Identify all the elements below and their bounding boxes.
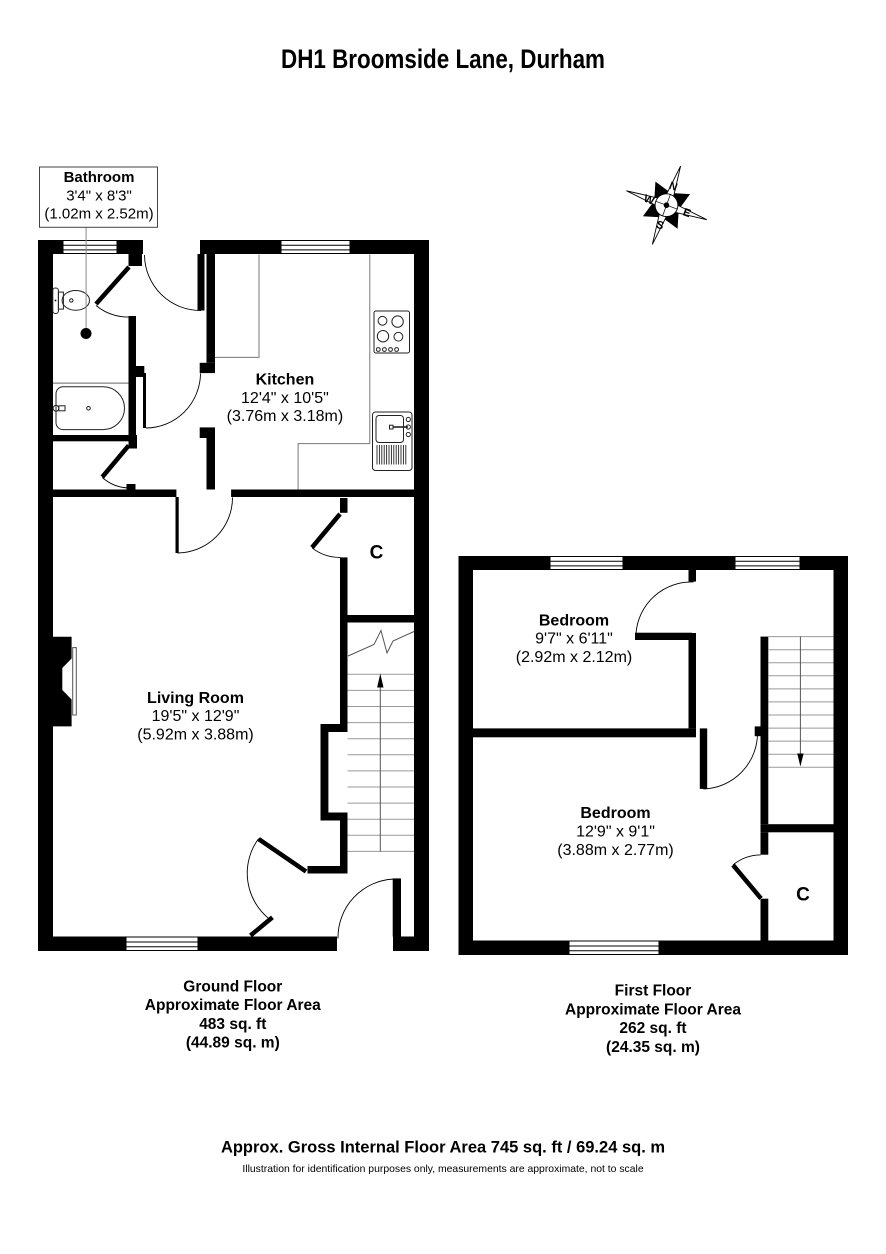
svg-text:Ground Floor: Ground Floor xyxy=(183,978,282,995)
svg-text:Kitchen: Kitchen xyxy=(256,372,315,389)
svg-text:(44.89 sq. m): (44.89 sq. m) xyxy=(186,1035,280,1052)
svg-text:262 sq. ft: 262 sq. ft xyxy=(619,1020,686,1037)
svg-text:19'5" x 12'9": 19'5" x 12'9" xyxy=(152,708,240,725)
svg-text:(1.02m x 2.52m): (1.02m x 2.52m) xyxy=(44,206,153,223)
svg-text:Bedroom: Bedroom xyxy=(580,805,650,822)
svg-text:(2.92m x 2.12m): (2.92m x 2.12m) xyxy=(516,649,632,666)
svg-text:3'4" x 8'3": 3'4" x 8'3" xyxy=(66,187,132,204)
svg-text:12'9" x 9'1": 12'9" x 9'1" xyxy=(576,824,655,841)
svg-text:Bedroom: Bedroom xyxy=(539,613,609,630)
svg-text:(5.92m x 3.88m): (5.92m x 3.88m) xyxy=(137,726,253,743)
svg-text:(3.76m x 3.18m): (3.76m x 3.18m) xyxy=(227,408,343,425)
svg-text:C: C xyxy=(370,543,384,564)
svg-text:Approx. Gross Internal Floor A: Approx. Gross Internal Floor Area 745 sq… xyxy=(221,1138,665,1156)
svg-text:Approximate Floor Area: Approximate Floor Area xyxy=(145,997,321,1014)
svg-text:Illustration for identificatio: Illustration for identification purposes… xyxy=(242,1164,643,1175)
svg-text:12'4" x 10'5": 12'4" x 10'5" xyxy=(241,390,329,407)
svg-text:Bathroom: Bathroom xyxy=(64,169,135,186)
svg-text:9'7" x 6'11": 9'7" x 6'11" xyxy=(535,631,613,648)
svg-text:483 sq. ft: 483 sq. ft xyxy=(199,1016,266,1033)
svg-text:(3.88m x 2.77m): (3.88m x 2.77m) xyxy=(557,842,673,859)
svg-text:DH1 Broomside Lane, Durham: DH1 Broomside Lane, Durham xyxy=(281,44,605,74)
svg-text:Living Room: Living Room xyxy=(147,690,244,707)
svg-text:(24.35 sq. m): (24.35 sq. m) xyxy=(606,1039,700,1056)
svg-text:Approximate Floor Area: Approximate Floor Area xyxy=(565,1001,741,1018)
svg-text:First Floor: First Floor xyxy=(615,983,692,1000)
svg-text:C: C xyxy=(796,884,810,905)
